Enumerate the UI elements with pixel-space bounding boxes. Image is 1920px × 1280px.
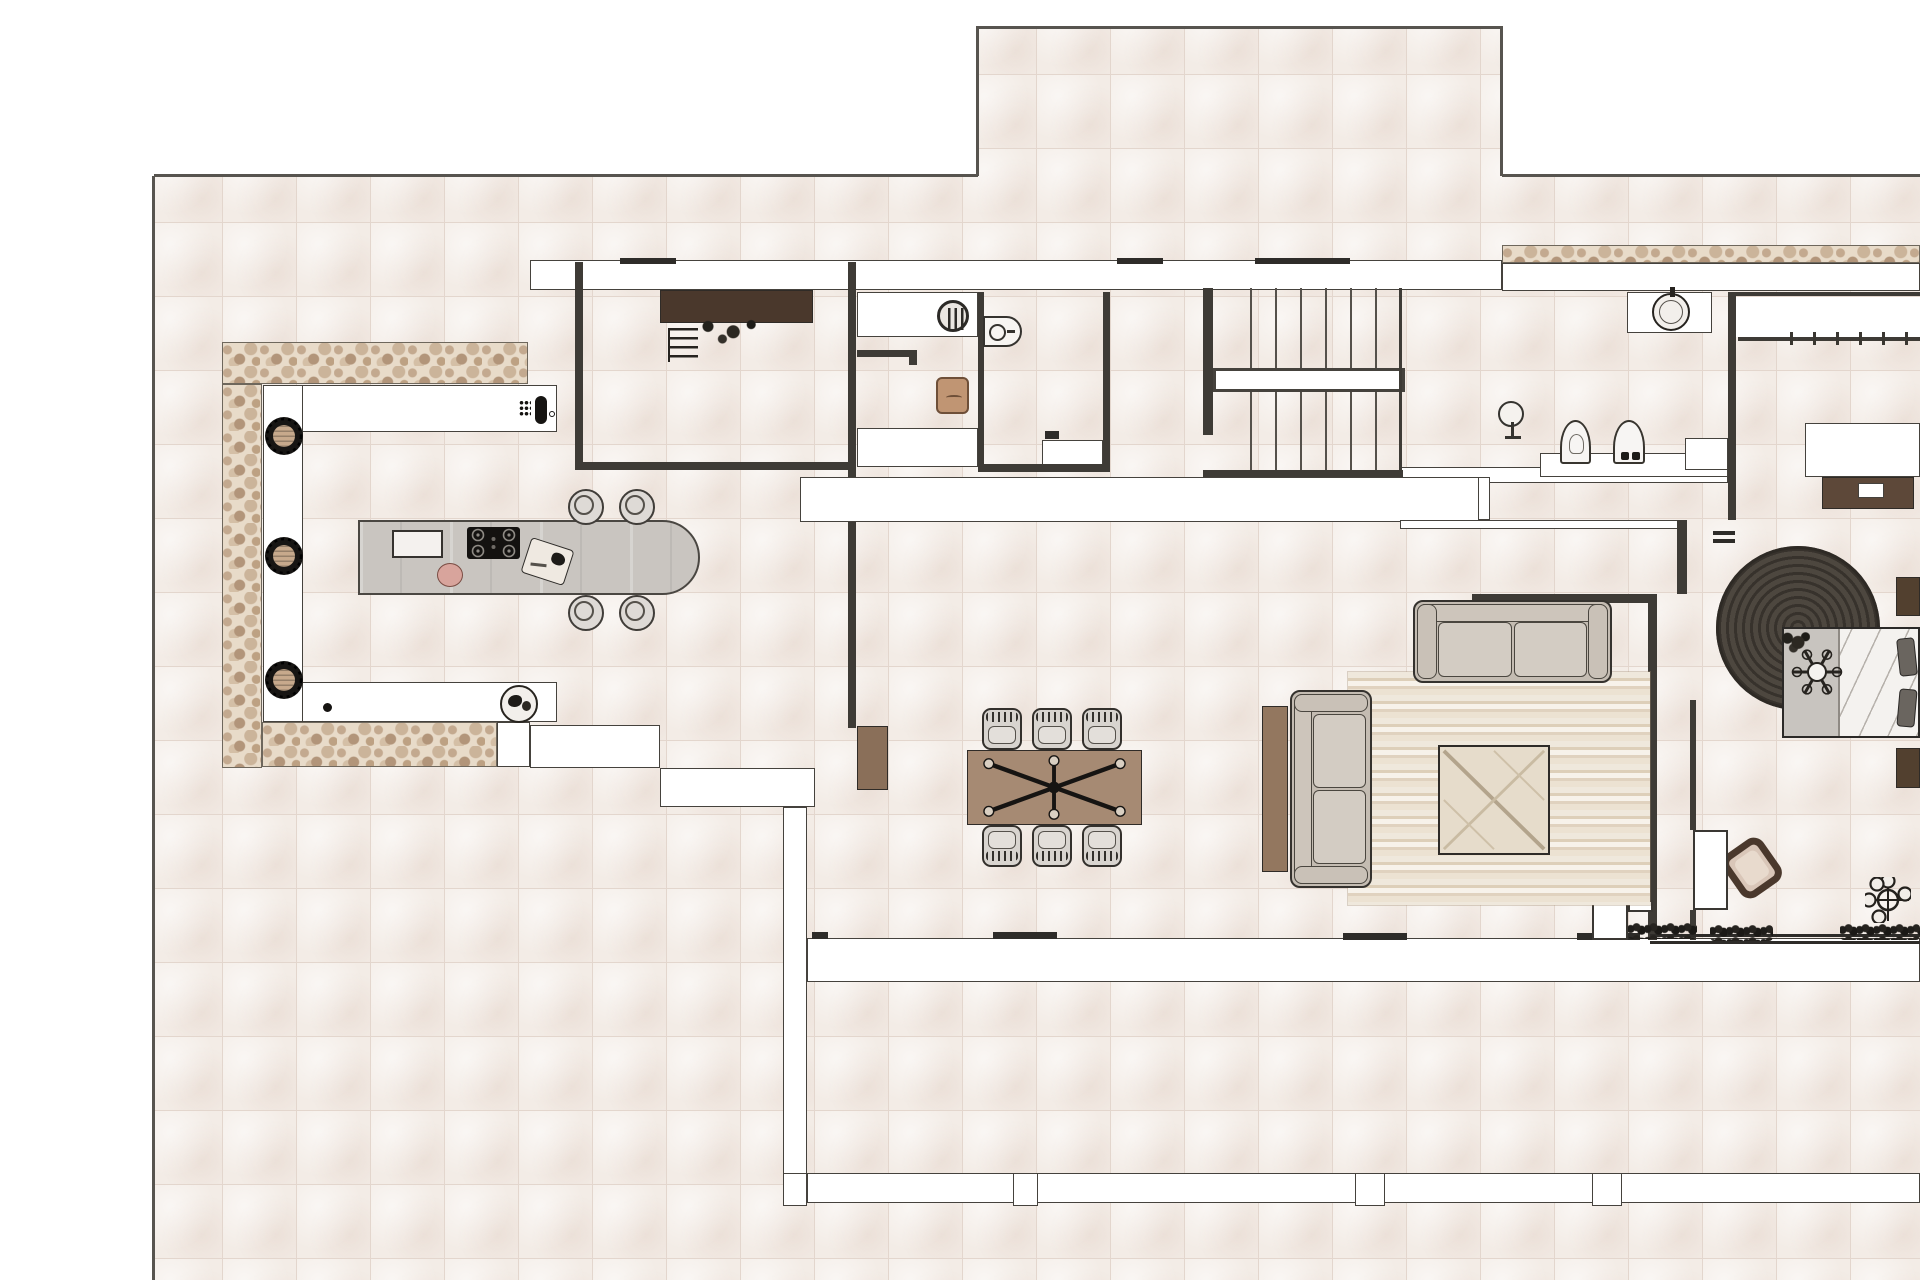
stair-treads-lower <box>1250 392 1400 470</box>
parapet-post-3 <box>1355 1173 1385 1206</box>
bar-chair-3 <box>568 595 604 631</box>
threshold-south-1 <box>812 932 828 939</box>
wall-shower-east <box>1103 292 1110 470</box>
north-wall-band-east <box>1502 263 1920 291</box>
wall-dining-west-lower <box>848 522 856 728</box>
coffee-table <box>1438 745 1550 855</box>
laundry-closet-bottom <box>857 428 978 467</box>
ceiling-fan <box>1790 645 1844 699</box>
sofa-horizontal <box>1413 600 1612 683</box>
dining-table <box>967 750 1142 825</box>
boundary-top-right <box>1502 174 1920 177</box>
counter-faucet <box>519 394 555 428</box>
stair-handrail <box>1213 368 1405 392</box>
south-sill-kitchen <box>530 725 660 768</box>
terrace-door-leaf <box>1592 900 1628 940</box>
door-hinge-tick-1 <box>1713 531 1735 535</box>
bar-chair-1 <box>568 489 604 525</box>
laundry-rail-hook <box>909 355 917 365</box>
floor-plan-canvas <box>0 0 1920 1280</box>
dining-chair-4 <box>982 825 1022 867</box>
wall-utility-west <box>575 262 583 467</box>
threshold-south-3 <box>1343 933 1407 940</box>
hall-wall-connector <box>1478 477 1490 520</box>
bedroom-glazing-2 <box>1650 941 1920 944</box>
bar-chair-2 <box>619 489 655 525</box>
island-hob <box>467 527 520 559</box>
laundry-basket <box>936 377 969 414</box>
stair-left-rail <box>1203 288 1213 435</box>
parapet-post-4 <box>1592 1173 1622 1206</box>
utility-ladder <box>668 328 698 362</box>
wall-bedroom-north <box>1736 292 1920 296</box>
hall-wall-lower <box>1400 520 1683 529</box>
bath-wall-niche <box>1685 438 1728 470</box>
hedge-planter-2 <box>1710 925 1773 941</box>
toilet-paper-holder <box>1045 431 1059 439</box>
wall-dining-west-upper <box>848 262 856 477</box>
hedge-planter-1 <box>1628 923 1697 939</box>
wall-stairs-south <box>1203 470 1403 477</box>
fruit-bowl <box>500 685 538 723</box>
vessel-sink <box>1652 293 1690 331</box>
nightstand-top <box>1896 577 1920 616</box>
counter-stool-2 <box>265 537 303 575</box>
dining-chair-3 <box>1082 708 1122 750</box>
laundry-rail <box>857 350 917 357</box>
closet-hanger-ticks <box>1790 332 1912 345</box>
washing-machine <box>937 300 969 332</box>
bath-floor-lamp <box>1498 401 1524 427</box>
shower-bench <box>1042 440 1103 467</box>
boundary-upper-terrace-left <box>976 28 979 176</box>
desk-object <box>1858 483 1884 498</box>
boundary-upper-terrace-right <box>1500 28 1503 176</box>
door-hinge-tick-2 <box>1713 539 1735 543</box>
stone-wall-kitchen-west <box>222 384 262 768</box>
wall-bedroom-west-upper <box>1690 700 1696 830</box>
counter-stool-1 <box>265 417 303 455</box>
west-glass-wall <box>783 807 807 1205</box>
bedroom-desk-top <box>1805 423 1920 477</box>
threshold-north-1 <box>620 258 676 264</box>
hedge-planter-3 <box>1840 924 1920 940</box>
potted-plant <box>1865 877 1911 923</box>
parapet-post-1 <box>783 1173 807 1206</box>
threshold-north-2 <box>1117 258 1163 264</box>
bar-chair-4 <box>619 595 655 631</box>
stone-band-northeast <box>1502 245 1920 263</box>
wall-utility-south <box>575 462 856 470</box>
counter-drain-dot <box>323 703 332 712</box>
island-sink <box>392 530 443 558</box>
nightstand-bottom <box>1896 748 1920 788</box>
stone-wall-kitchen-north <box>222 342 528 384</box>
serving-tray <box>437 563 463 587</box>
dining-sideboard <box>857 726 888 790</box>
wall-bath-bedroom <box>1728 292 1736 520</box>
south-sill-step <box>660 768 815 807</box>
boundary-left <box>152 176 155 1280</box>
south-wall-pillar <box>497 722 530 767</box>
stair-treads-upper <box>1250 288 1400 368</box>
boundary-upper-terrace-top <box>976 26 1503 29</box>
bedroom-closet-band <box>1736 297 1920 337</box>
hall-cabinet-row <box>800 477 1490 522</box>
counter-stool-3 <box>265 661 303 699</box>
dining-chair-6 <box>1082 825 1122 867</box>
stone-wall-kitchen-south <box>262 722 497 767</box>
utility-plant <box>690 312 762 348</box>
sofa-console <box>1262 706 1288 872</box>
north-wall-band <box>530 260 1502 290</box>
wall-lobby-east <box>1677 520 1687 594</box>
dining-chair-1 <box>982 708 1022 750</box>
threshold-north-3 <box>1255 258 1350 264</box>
bedroom-door-leaf <box>1693 830 1728 910</box>
dining-chair-2 <box>1032 708 1072 750</box>
boundary-top-left <box>154 174 978 177</box>
shower-washbasin <box>983 316 1022 347</box>
wall-shower-south <box>978 464 1110 472</box>
parapet-post-2 <box>1013 1173 1038 1206</box>
sofa-vertical <box>1290 690 1372 888</box>
dining-chair-5 <box>1032 825 1072 867</box>
threshold-south-2 <box>993 932 1057 939</box>
south-wall-band <box>807 938 1920 982</box>
kitchen-counter-top <box>263 385 557 432</box>
